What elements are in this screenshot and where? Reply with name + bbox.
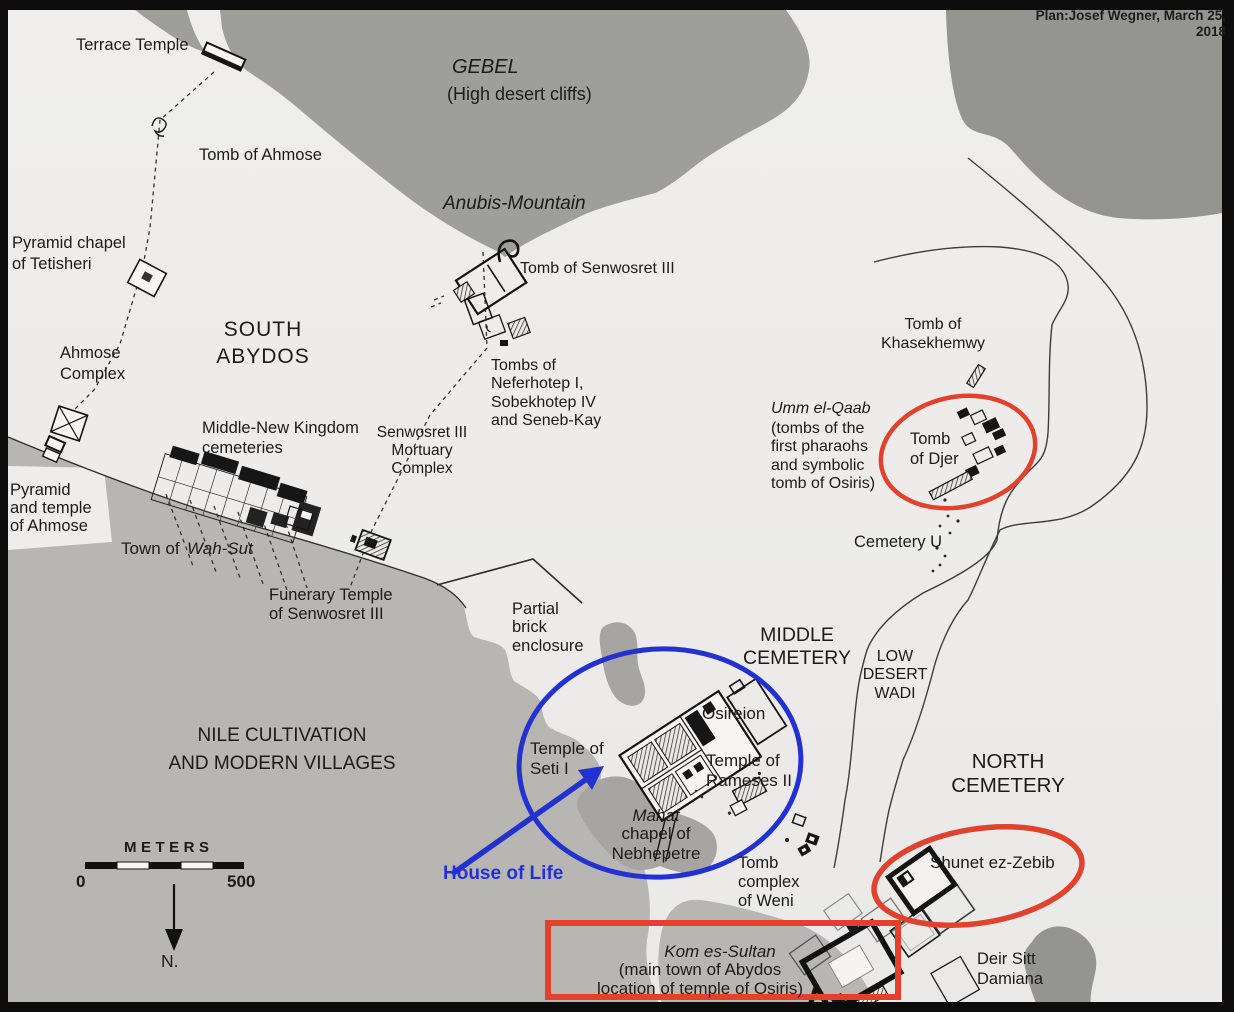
tomb-complex-weni: Tomb complex of Weni bbox=[738, 854, 799, 911]
ahmose-complex: Ahmose Complex bbox=[60, 343, 125, 386]
tomb-of-khasekhemwy: Tomb of Khasekhemwy bbox=[872, 315, 994, 353]
mahat-desc: chapel of Nebhepetre bbox=[606, 824, 706, 863]
funerary-temple-senwosret: Funerary Temple of Senwosret III bbox=[269, 586, 393, 624]
temple-of-seti: Temple of Seti I bbox=[530, 739, 604, 778]
cemetery-u: Cemetery U bbox=[854, 533, 942, 552]
credit: Plan:Josef Wegner, March 25, 2018 bbox=[1012, 8, 1226, 40]
gebel-title: GEBEL bbox=[452, 56, 519, 80]
umm-el-qaab-desc: (tombs of the first pharaohs and symboli… bbox=[771, 420, 875, 494]
middle-cemetery: MIDDLE CEMETERY bbox=[737, 624, 857, 671]
tomb-of-djer: Tomb of Djer bbox=[910, 430, 959, 470]
middle-new-kingdom-cemeteries: Middle-New Kingdom cemeteries bbox=[202, 419, 359, 459]
temple-of-rameses: Temple of Rameses II bbox=[706, 751, 792, 790]
senwosret-mortuary-complex: Senwosret III Mortuary Complex bbox=[376, 424, 468, 477]
tomb-of-ahmose: Tomb of Ahmose bbox=[199, 146, 322, 165]
anubis-mountain: Anubis-Mountain bbox=[443, 193, 586, 215]
north-label: N. bbox=[161, 951, 179, 972]
pyramid-chapel-tetisheri: Pyramid chapel of Tetisheri bbox=[12, 233, 126, 274]
kom-es-sultan-desc: (main town of Abydos location of temple … bbox=[580, 961, 820, 998]
low-desert-wadi: LOW DESERT WADI bbox=[857, 648, 933, 703]
meters: METERS bbox=[124, 839, 214, 857]
north-cemetery: NORTH CEMETERY bbox=[948, 750, 1068, 798]
tomb-of-senwosret-iii: Tomb of Senwosret III bbox=[520, 260, 675, 279]
tombs-neferhotep: Tombs of Neferhotep I, Sobekhotep IV and… bbox=[491, 357, 601, 431]
osireion: Osireion bbox=[702, 704, 765, 724]
terrace-temple: Terrace Temple bbox=[76, 36, 189, 55]
scale-0: 0 bbox=[76, 872, 85, 892]
gebel-subtitle: (High desert cliffs) bbox=[447, 84, 592, 105]
south-abydos: SOUTH ABYDOS bbox=[203, 316, 323, 371]
umm-el-qaab: Umm el-Qaab bbox=[771, 400, 871, 419]
abydos-map-photo: Plan:Josef Wegner, March 25, 2018Terrace… bbox=[0, 0, 1234, 1012]
shunet-ez-zebib: Shunet ez-Zebib bbox=[930, 853, 1055, 873]
house-of-life: House of Life bbox=[443, 863, 563, 885]
wah-sut: Wah-Sut bbox=[187, 539, 253, 559]
town-of: Town of bbox=[121, 539, 180, 559]
deir-sitt-damiana: Deir Sitt Damiana bbox=[977, 950, 1043, 990]
map-labels-layer: Plan:Josef Wegner, March 25, 2018Terrace… bbox=[0, 0, 1234, 1012]
pyramid-temple-ahmose: Pyramid and temple of Ahmose bbox=[10, 481, 92, 535]
scale-500: 500 bbox=[227, 872, 255, 892]
partial-brick-enclosure: Partial brick enclosure bbox=[512, 600, 584, 655]
nile-cultivation: NILE CULTIVATION AND MODERN VILLAGES bbox=[160, 722, 404, 777]
